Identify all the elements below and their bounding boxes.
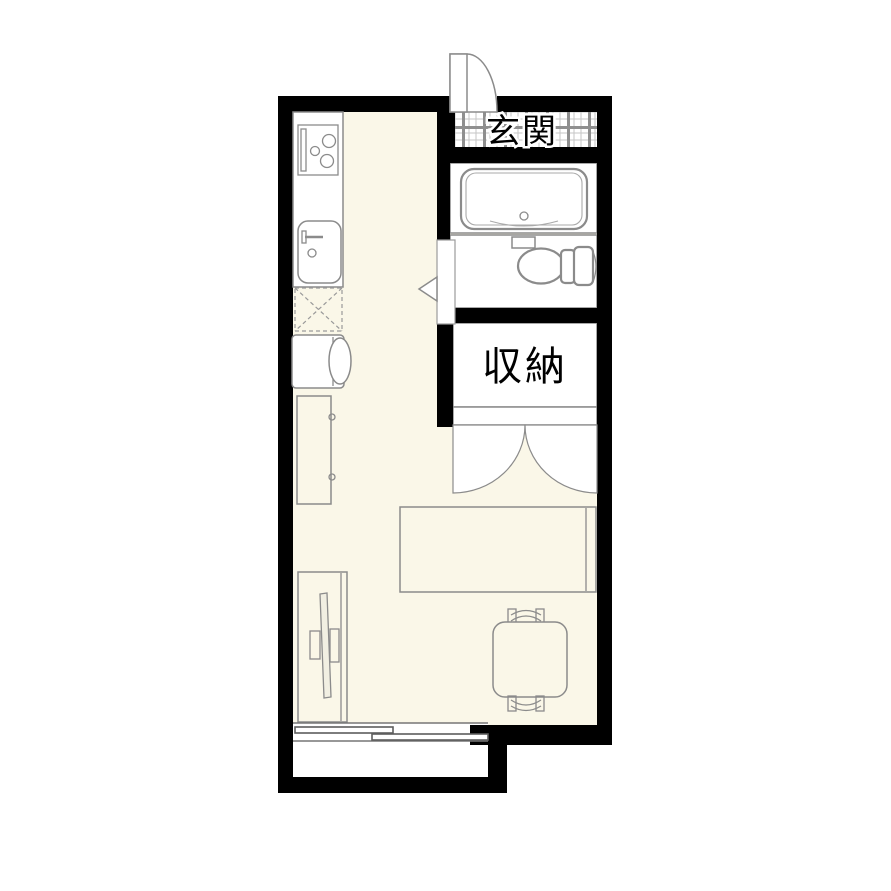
floor-plan: 玄関 収納 xyxy=(0,0,891,891)
wall-bottom-right xyxy=(470,725,612,745)
bed-body xyxy=(400,507,596,592)
window-panel-right xyxy=(372,734,488,740)
toilet-bowl-icon xyxy=(518,249,564,284)
bed xyxy=(400,507,596,592)
wall-under-toilet xyxy=(437,308,597,323)
entrance-door-leaf xyxy=(450,54,467,112)
storage-door-track xyxy=(453,407,597,425)
wall-top-right xyxy=(497,96,612,112)
washing-machine xyxy=(292,335,351,388)
storage-label: 収納 xyxy=(482,345,568,389)
bathtub xyxy=(461,169,587,229)
toilet-tank xyxy=(574,247,593,285)
wall-balcony-bottom xyxy=(278,777,507,793)
sink-basin xyxy=(298,221,341,283)
toilet-door-leaf xyxy=(437,240,455,324)
cabinet-body xyxy=(297,396,331,504)
table-set xyxy=(493,609,567,711)
wall-right xyxy=(597,96,612,745)
wall-left xyxy=(278,96,293,793)
sink xyxy=(298,221,341,283)
entrance-label: 玄関 xyxy=(486,113,558,151)
wall-top-left xyxy=(278,96,450,112)
washing-machine-drum-icon xyxy=(329,338,351,384)
wall-bath-left xyxy=(437,163,450,241)
window-panel-left xyxy=(295,727,393,733)
tv-board xyxy=(298,572,347,722)
wall-closet-left xyxy=(437,323,453,427)
toilet-shelf xyxy=(512,237,535,248)
table xyxy=(493,622,567,697)
cabinet xyxy=(297,396,335,504)
